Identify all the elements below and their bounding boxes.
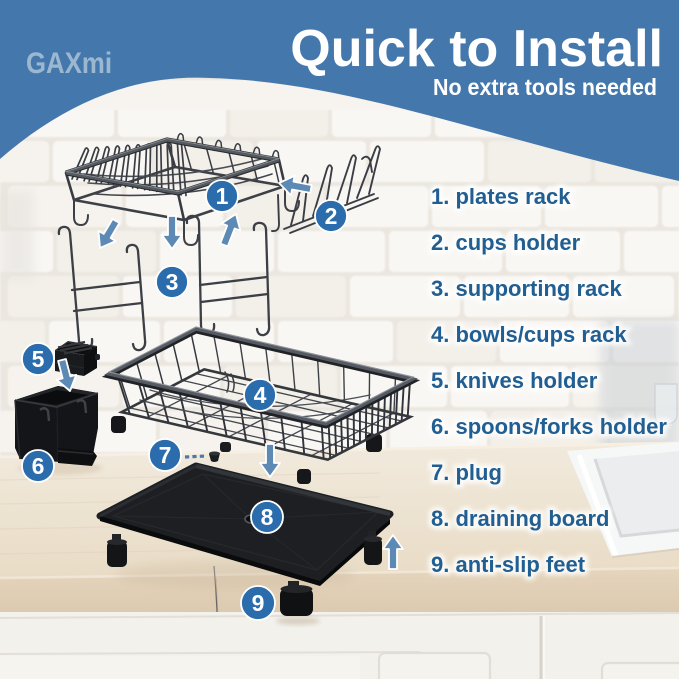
svg-text:7. plug: 7. plug bbox=[431, 460, 502, 485]
svg-text:No extra tools needed: No extra tools needed bbox=[433, 74, 657, 100]
svg-text:3: 3 bbox=[166, 269, 179, 295]
svg-text:4. bowls/cups rack: 4. bowls/cups rack bbox=[431, 322, 627, 347]
svg-text:GAXmi: GAXmi bbox=[26, 47, 112, 80]
svg-text:1. plates rack: 1. plates rack bbox=[431, 184, 571, 209]
svg-text:6. spoons/forks holder: 6. spoons/forks holder bbox=[431, 414, 667, 439]
svg-text:9: 9 bbox=[252, 590, 265, 616]
svg-text:2: 2 bbox=[325, 203, 338, 229]
svg-text:8. draining board: 8. draining board bbox=[431, 506, 609, 531]
svg-text:Quick to Install: Quick to Install bbox=[290, 20, 663, 78]
svg-text:8: 8 bbox=[261, 504, 274, 530]
svg-text:4: 4 bbox=[254, 382, 267, 408]
svg-text:7: 7 bbox=[159, 442, 172, 468]
svg-text:3. supporting rack: 3. supporting rack bbox=[431, 276, 622, 301]
svg-text:1: 1 bbox=[216, 183, 229, 209]
svg-text:2. cups holder: 2. cups holder bbox=[431, 230, 581, 255]
svg-text:9. anti-slip feet: 9. anti-slip feet bbox=[431, 552, 586, 577]
svg-text:6: 6 bbox=[32, 453, 45, 479]
svg-text:5: 5 bbox=[32, 346, 45, 372]
svg-text:5. knives holder: 5. knives holder bbox=[431, 368, 598, 393]
